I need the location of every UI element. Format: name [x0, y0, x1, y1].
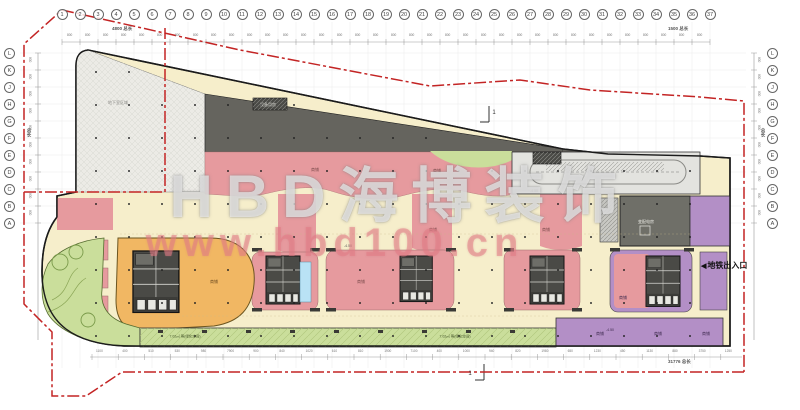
grid-column-bubble: 10 — [219, 9, 230, 20]
grid-column-bubble: 20 — [399, 9, 410, 20]
dim-tick-label: 3750 — [699, 349, 706, 353]
plan-label: 商铺 — [311, 167, 319, 173]
grid-row-bubble: L — [767, 48, 778, 59]
grid-row-bubble: K — [767, 65, 778, 76]
dim-tick-label: 800 — [391, 33, 396, 37]
plan-label: 商铺 — [433, 168, 441, 174]
dim-tick-label: 1230 — [594, 349, 601, 353]
vehicle-ramp-hatch — [546, 162, 664, 171]
dim-tick-label: 800 — [499, 33, 504, 37]
grid-row-bubble: G — [4, 116, 15, 127]
grid-row-bubble: H — [4, 99, 15, 110]
grid-column-bubble: 18 — [363, 9, 374, 20]
dim-tick-label: 980 — [201, 349, 206, 353]
dim-total-top-left: 4800 总长 — [112, 26, 132, 32]
dim-tick-label: 1900 — [384, 349, 391, 353]
grid-column-bubble: 31 — [597, 9, 608, 20]
dim-tick-label: 800 — [28, 159, 32, 164]
plan-label: 设备用房 — [260, 102, 276, 108]
grid-column-bubble: 4 — [111, 9, 122, 20]
dim-tick-label: 800 — [661, 33, 666, 37]
dim-tick-label: 800 — [28, 91, 32, 96]
grid-row-bubble: A — [767, 218, 778, 229]
dim-tick-label: 800 — [373, 33, 378, 37]
dim-tick-label: 800 — [247, 33, 252, 37]
grid-column-bubble: 37 — [705, 9, 716, 20]
dim-tick-label: 800 — [697, 33, 702, 37]
dim-tick-label: 1100 — [96, 349, 103, 353]
grid-column-bubble: 17 — [345, 9, 356, 20]
plan-label: 商铺 — [542, 227, 550, 233]
dim-tick-label: 800 — [157, 33, 162, 37]
dim-tick-label: 810 — [358, 349, 363, 353]
grid-row-bubble: B — [4, 201, 15, 212]
grid-column-bubble: 22 — [435, 9, 446, 20]
plan-label: -4.50 — [344, 244, 352, 248]
grid-column-bubble: 32 — [615, 9, 626, 20]
dim-tick-label: 1020 — [306, 349, 313, 353]
grid-row-bubble: K — [4, 65, 15, 76]
dim-tick-label: 800 — [301, 33, 306, 37]
dim-tick-label: 800 — [757, 91, 761, 96]
dim-tick-label: 820 — [515, 349, 520, 353]
plan-label: 商铺 — [357, 279, 365, 285]
dim-tick-label: 800 — [589, 33, 594, 37]
dim-tick-label: 800 — [28, 193, 32, 198]
dim-tick-label: 800 — [757, 176, 761, 181]
grid-row-bubble: D — [767, 167, 778, 178]
dim-tick-label: 940 — [489, 349, 494, 353]
subway-entrance-label: ◀ 地铁出入口 — [701, 260, 747, 271]
plan-label: 商铺 — [596, 331, 604, 337]
floorplan-canvas: 1800280038004800580068007800880098001080… — [0, 0, 800, 410]
grid-column-bubble: 8 — [183, 9, 194, 20]
dim-tick-label: 800 — [757, 142, 761, 147]
dim-tick-label: 900 — [253, 349, 258, 353]
dim-tick-label: 840 — [279, 349, 284, 353]
dim-tick-label: 800 — [553, 33, 558, 37]
dim-tick-label: 800 — [211, 33, 216, 37]
dim-tick-label: 800 — [283, 33, 288, 37]
grid-row-bubble: L — [4, 48, 15, 59]
plan-label: 商铺 — [210, 279, 218, 285]
dim-tick-label: 800 — [28, 74, 32, 79]
dim-total-bottom: 31776 总长 — [668, 359, 691, 365]
grid-column-bubble: 36 — [687, 9, 698, 20]
dim-tick-label: 450 — [620, 349, 625, 353]
service-cyan-strip — [300, 262, 311, 302]
grid-row-bubble: A — [4, 218, 15, 229]
dim-tick-label: 1980 — [541, 349, 548, 353]
dim-tick-label: 800 — [757, 210, 761, 215]
grid-column-bubble: 28 — [543, 9, 554, 20]
dim-tick-label: 800 — [139, 33, 144, 37]
grid-row-bubble: H — [767, 99, 778, 110]
dim-tick-label: 650 — [568, 349, 573, 353]
dim-tick-label: 1000 — [463, 349, 470, 353]
ramp-hall — [512, 152, 700, 194]
grid-column-bubble: 7 — [165, 9, 176, 20]
dim-tick-label: 800 — [757, 159, 761, 164]
dim-tick-label: 400 — [122, 349, 127, 353]
dim-tick-label: 800 — [757, 74, 761, 79]
dim-tick-label: 800 — [409, 33, 414, 37]
dim-tick-label: 800 — [427, 33, 432, 37]
plan-label: 地下室区域 — [108, 100, 128, 106]
dim-tick-label: 800 — [28, 176, 32, 181]
subway-entrance-text: 地铁出入口 — [707, 260, 747, 271]
plan-label: 1 — [492, 110, 495, 116]
grid-row-bubble: C — [767, 184, 778, 195]
dim-tick-label: 800 — [625, 33, 630, 37]
dim-tick-label: 800 — [607, 33, 612, 37]
plan-label: -4.50 — [530, 189, 538, 193]
dim-tick-label: 800 — [355, 33, 360, 37]
plan-label: 变配电房 — [638, 219, 654, 225]
dim-tick-label: 800 — [28, 108, 32, 113]
dim-tick-label: 800 — [481, 33, 486, 37]
grid-row-bubble: C — [4, 184, 15, 195]
grid-row-bubble: J — [767, 82, 778, 93]
grid-row-bubble: E — [767, 150, 778, 161]
grid-row-bubble: D — [4, 167, 15, 178]
grid-row-bubble: G — [767, 116, 778, 127]
grid-column-bubble: 23 — [453, 9, 464, 20]
dim-total-top-right: 1500 总长 — [668, 26, 688, 32]
dim-tick-label: 800 — [121, 33, 126, 37]
grid-column-bubble: 6 — [147, 9, 158, 20]
grid-column-bubble: 5 — [129, 9, 140, 20]
grid-column-bubble: 12 — [255, 9, 266, 20]
dim-tick-label: 800 — [679, 33, 684, 37]
grid-column-bubble: 15 — [309, 9, 320, 20]
dim-tick-label: 800 — [28, 142, 32, 147]
grid-column-bubble: 1 — [57, 9, 68, 20]
grid-column-bubble: 29 — [561, 9, 572, 20]
grid-column-bubble: 33 — [633, 9, 644, 20]
dim-tick-label: 610 — [332, 349, 337, 353]
grid-column-bubble: 27 — [525, 9, 536, 20]
grid-column-bubble: 21 — [417, 9, 428, 20]
plan-label: 商铺 — [654, 331, 662, 337]
plan-label: -4.50 — [606, 328, 614, 332]
dim-tick-label: 800 — [571, 33, 576, 37]
dim-tick-label: 800 — [85, 33, 90, 37]
grid-row-bubble: F — [767, 133, 778, 144]
left-arrow-icon: ◀ — [701, 262, 706, 270]
plan-label: 商铺 — [619, 295, 627, 301]
grid-column-bubble: 2 — [75, 9, 86, 20]
grid-row-bubble: J — [4, 82, 15, 93]
grid-column-bubble: 14 — [291, 9, 302, 20]
dim-tick-label: 400 — [437, 349, 442, 353]
dim-tick-label: 800 — [103, 33, 108, 37]
grid-column-bubble: 34 — [651, 9, 662, 20]
grid-row-bubble: E — [4, 150, 15, 161]
dim-tick-label: 800 — [337, 33, 342, 37]
dim-tick-label: 7900 — [227, 349, 234, 353]
dim-tick-label: 800 — [28, 210, 32, 215]
plan-label: 商铺 — [702, 331, 710, 337]
dim-tick-label: 800 — [757, 57, 761, 62]
dim-tick-label: 800 — [319, 33, 324, 37]
plan-label: 1 — [468, 371, 471, 377]
dim-tick-label: 800 — [757, 108, 761, 113]
grid-column-bubble: 13 — [273, 9, 284, 20]
grid-column-bubble: 25 — [489, 9, 500, 20]
dim-tick-label: 1130 — [646, 349, 653, 353]
grid-column-bubble: 30 — [579, 9, 590, 20]
dim-tick-label: 800 — [463, 33, 468, 37]
grid-column-bubble: 16 — [327, 9, 338, 20]
dim-tick-label: 800 — [535, 33, 540, 37]
grid-column-bubble: 26 — [507, 9, 518, 20]
plan-drawing — [0, 0, 800, 410]
grid-row-bubble: F — [4, 133, 15, 144]
dim-tick-label: 800 — [643, 33, 648, 37]
dim-total-left: 总长 — [26, 128, 32, 137]
dim-tick-label: 800 — [175, 33, 180, 37]
dim-total-right: 总长 — [760, 128, 766, 137]
grid-column-bubble: 9 — [201, 9, 212, 20]
plan-label: 商铺 — [429, 227, 437, 233]
dim-tick-label: 800 — [193, 33, 198, 37]
dim-tick-label: 800 — [67, 33, 72, 37]
grid-column-bubble: 19 — [381, 9, 392, 20]
grid-column-bubble: 35 — [669, 9, 680, 20]
dim-tick-label: 800 — [265, 33, 270, 37]
dim-tick-label: 800 — [28, 57, 32, 62]
dim-tick-label: 800 — [445, 33, 450, 37]
grid-column-bubble: 3 — [93, 9, 104, 20]
dim-tick-label: 1250 — [725, 349, 732, 353]
grid-column-bubble: 24 — [471, 9, 482, 20]
plan-label: 7.02㎡ 等(绿化空间) — [169, 335, 200, 340]
grid-column-bubble: 11 — [237, 9, 248, 20]
grid-row-bubble: B — [767, 201, 778, 212]
dim-tick-label: 880 — [672, 349, 677, 353]
dim-tick-label: 530 — [175, 349, 180, 353]
dim-tick-label: 800 — [757, 193, 761, 198]
dim-tick-label: 800 — [517, 33, 522, 37]
dim-tick-label: 7100 — [410, 349, 417, 353]
plan-label: 7.02㎡ 等(绿化空间) — [439, 335, 470, 340]
dim-tick-label: 510 — [148, 349, 153, 353]
dim-tick-label: 800 — [229, 33, 234, 37]
